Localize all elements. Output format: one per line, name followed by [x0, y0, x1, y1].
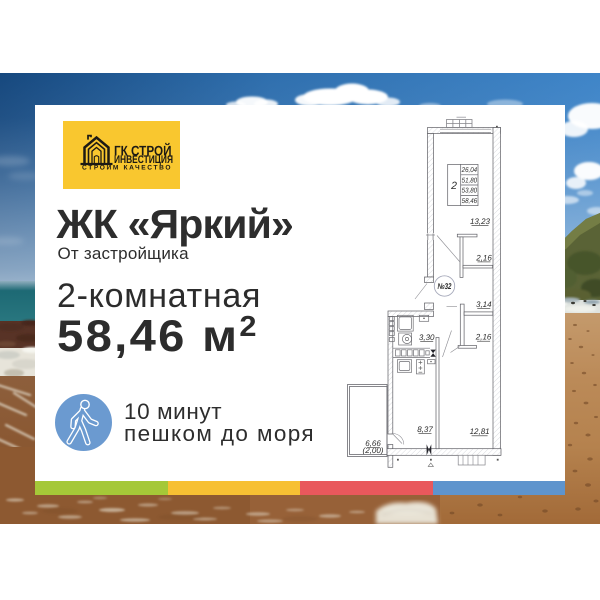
- svg-text:2,16: 2,16: [475, 253, 492, 262]
- svg-text:26,04: 26,04: [461, 167, 477, 174]
- svg-text:13,23: 13,23: [470, 217, 491, 226]
- svg-text:53,80: 53,80: [462, 188, 478, 195]
- svg-text:3,14: 3,14: [476, 300, 492, 309]
- svg-text:2,16: 2,16: [475, 333, 492, 342]
- svg-text:12,81: 12,81: [470, 427, 490, 436]
- svg-text:58,46: 58,46: [462, 198, 478, 205]
- svg-text:8,37: 8,37: [417, 425, 433, 434]
- svg-text:№32: №32: [438, 281, 452, 291]
- svg-text:51,80: 51,80: [462, 177, 478, 184]
- svg-text:2: 2: [450, 180, 457, 192]
- svg-text:СТРОИМ КАЧЕСТВО: СТРОИМ КАЧЕСТВО: [82, 165, 171, 172]
- svg-text:3,30: 3,30: [419, 333, 435, 342]
